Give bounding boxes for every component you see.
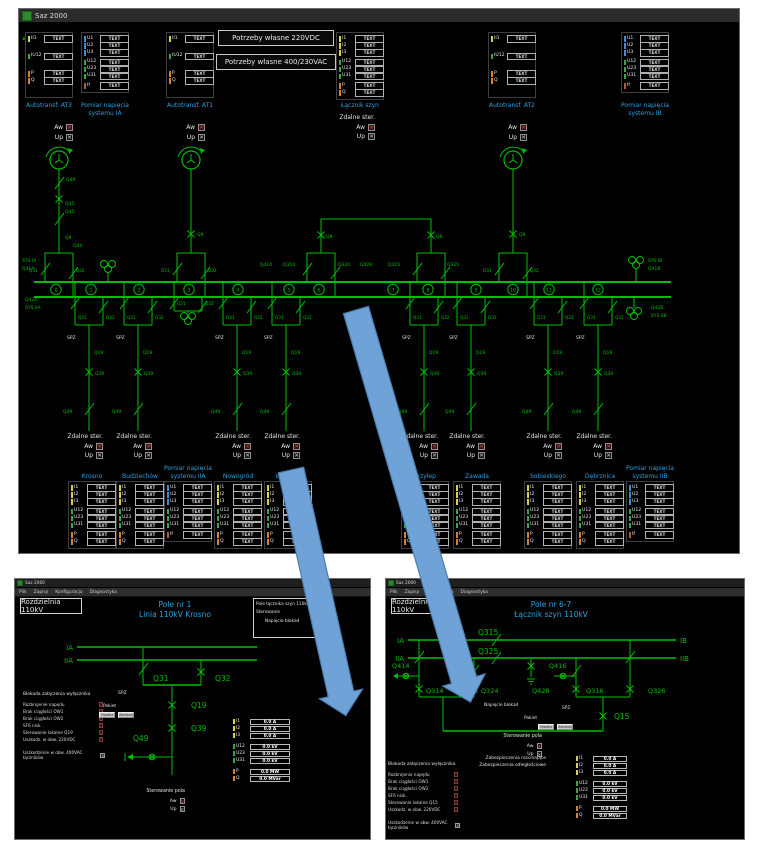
sub-left-measurements: I10.0 AI20.0 AI30.0 AU120.0 kVU230.0 kVU… <box>233 718 290 782</box>
color-bar-icon <box>404 516 406 522</box>
color-bar-icon <box>233 758 235 764</box>
panel-group: PTEXTQTEXT <box>579 532 621 546</box>
svg-text:Napięcie blokad: Napięcie blokad <box>484 702 519 708</box>
telemetry-row: QTEXT <box>267 539 309 546</box>
menu-item-zapisy[interactable]: Zapisy <box>34 590 49 595</box>
telemetry-value: TEXT <box>100 49 129 57</box>
panel-group: I1TEXTI2TEXTI3TEXT <box>217 485 259 506</box>
color-bar-icon <box>404 509 406 515</box>
coupler-remote-remote-row: Zdalne ster. <box>319 113 375 123</box>
telemetry-label: I1 <box>122 485 135 491</box>
color-bar-icon <box>28 54 30 60</box>
svg-text:Q315: Q315 <box>478 628 498 637</box>
instrument-panel-bottom-8: I1TEXTI2TEXTI3TEXTU12TEXTU23TEXTU31TEXTP… <box>576 481 624 549</box>
telemetry-label: U23 <box>627 66 640 72</box>
panel-group: I1TEXTI2TEXTI3TEXT <box>339 36 381 57</box>
telemetry-label: U12 <box>530 508 543 514</box>
aw-label: Aw <box>466 443 475 450</box>
up-checkbox[interactable]: ✕ <box>478 452 485 459</box>
telemetry-value: TEXT <box>420 498 449 506</box>
feeder-remote-7-remote-row: Zdalne ster. <box>552 432 612 442</box>
telemetry-row: U31TEXT <box>456 522 498 529</box>
panel-caption-top-3[interactable]: Łącznik szyn <box>325 102 395 110</box>
telemetry-label: P <box>582 532 595 538</box>
measurement-row: P0.0 MW <box>233 768 290 775</box>
telemetry-row: II1TEXT <box>169 36 211 43</box>
panel-group: U12TEXTU23TEXTU31TEXT <box>339 59 381 80</box>
panel-caption-top-5[interactable]: Pomiar napięcia systemu IB <box>610 102 680 117</box>
color-bar-icon <box>233 769 235 775</box>
sub-right-menubar: PlikZapisyKonfiguracjaDiagnostyka <box>386 588 744 597</box>
telemetry-row: U31TEXT <box>339 73 381 80</box>
color-bar-icon <box>169 71 171 77</box>
measurement-label: I1 <box>579 756 593 761</box>
measurement-label: I3 <box>236 733 250 738</box>
color-bar-icon <box>119 509 121 515</box>
svg-text:Q324: Q324 <box>338 262 350 268</box>
aw-label: Aw <box>186 124 195 131</box>
station-label: Rozdzielnia 110kV <box>20 598 82 614</box>
measurement-label: Q <box>236 776 250 781</box>
svg-text:Q39: Q39 <box>292 371 301 377</box>
blockade-status-box <box>99 730 104 735</box>
color-bar-icon <box>267 532 269 538</box>
aw-label: Aw <box>54 124 63 131</box>
panel-group: IfTEXT <box>629 532 671 539</box>
color-bar-icon <box>576 806 578 812</box>
svg-text:9: 9 <box>475 288 478 294</box>
aw-checkbox[interactable]: ✕ <box>145 443 152 450</box>
instrument-panel-bottom-7: I1TEXTI2TEXTI3TEXTU12TEXTU23TEXTU31TEXTP… <box>524 481 572 549</box>
svg-text:Q32: Q32 <box>488 315 497 320</box>
telemetry-value: TEXT <box>183 531 212 539</box>
measurement-value: 0.0 MW <box>250 769 290 775</box>
telemetry-label: IU12 <box>172 53 185 59</box>
blockade-item-label: Rozbrojenie napędu <box>388 772 430 777</box>
panel-group: PTEXTQTEXT <box>28 71 70 85</box>
telemetry-value: TEXT <box>595 522 624 530</box>
svg-text:Q32: Q32 <box>565 315 574 320</box>
telemetry-value: TEXT <box>233 538 262 546</box>
telemetry-label: U31 <box>632 522 645 528</box>
telemetry-label: U31 <box>342 73 355 79</box>
telemetry-label: I2 <box>270 492 283 498</box>
telemetry-label: If <box>170 532 183 538</box>
color-bar-icon <box>527 499 529 505</box>
instrument-panel-top-2: II1TEXTIU12TEXTPTEXTQTEXT <box>166 32 214 98</box>
telemetry-value: TEXT <box>87 522 116 530</box>
svg-text:12: 12 <box>595 288 601 294</box>
telemetry-value: TEXT <box>183 522 212 530</box>
svg-text:SPZ: SPZ <box>449 335 458 341</box>
color-bar-icon <box>339 43 341 49</box>
telemetry-row: U3TEXT <box>624 50 666 57</box>
telemetry-label: I3 <box>459 499 472 505</box>
telemetry-row: IfTEXT <box>629 532 671 539</box>
color-bar-icon <box>629 492 631 498</box>
telemetry-value: TEXT <box>183 498 212 506</box>
telemetry-label: II1 <box>31 36 44 42</box>
color-bar-icon <box>527 485 529 491</box>
telemetry-label: U31 <box>530 522 543 528</box>
telemetry-label: U12 <box>74 508 87 514</box>
menu-item-diagnostyka[interactable]: Diagnostyka <box>90 590 117 595</box>
instrument-panel-top-4: II1TEXTIU12TEXTPTEXTQTEXT <box>488 32 536 98</box>
svg-text:Q326: Q326 <box>648 687 666 695</box>
aw-checkbox[interactable]: ✕ <box>368 124 375 131</box>
feeder-remote-5: Zdalne ster.Aw✕Up✕ <box>425 432 485 461</box>
telemetry-row: IU12TEXT <box>28 53 70 60</box>
telemetry-row: I3TEXT <box>404 499 446 506</box>
color-bar-icon <box>624 43 626 49</box>
color-bar-icon <box>84 74 86 80</box>
main-titlebar[interactable]: Saz 2000 <box>19 9 739 23</box>
potrzeby-wlasne-400-230vac-button[interactable]: Potrzeby własne 400/230VAC <box>216 54 336 70</box>
telemetry-label: U3 <box>627 50 640 56</box>
feeder-remote-5-remote-row: Zdalne ster. <box>425 432 485 442</box>
svg-text:10: 10 <box>510 288 516 294</box>
color-bar-icon <box>71 485 73 491</box>
telemetry-value: TEXT <box>135 522 164 530</box>
telemetry-value: TEXT <box>185 77 214 85</box>
pakiet-button[interactable]: Otwórz <box>99 712 115 718</box>
busbars <box>34 282 671 297</box>
aw-label: Aw <box>170 799 177 804</box>
aw-checkbox[interactable]: ✕ <box>198 124 205 131</box>
panel-group: PTEXTQTEXT <box>456 532 498 546</box>
telemetry-label: U12 <box>220 508 233 514</box>
telemetry-value: TEXT <box>420 522 449 530</box>
telemetry-row: U31TEXT <box>119 522 161 529</box>
telemetry-label: Q <box>407 539 420 545</box>
up-label: Up <box>544 452 552 459</box>
telemetry-label: I1 <box>220 485 233 491</box>
telemetry-label: I3 <box>530 499 543 505</box>
up-checkbox[interactable]: ✕ <box>198 134 205 141</box>
panel-caption-top-2[interactable]: Autotransf. AT1 <box>155 102 225 110</box>
up-checkbox[interactable]: ✕ <box>520 134 527 141</box>
color-bar-icon <box>629 499 631 505</box>
svg-text:Q314: Q314 <box>426 687 444 695</box>
panel-group: PTEXTQTEXT <box>491 71 533 85</box>
panel-group: U12TEXTU23TEXTU31TEXT <box>217 508 259 529</box>
telemetry-row: QTEXT <box>579 539 621 546</box>
telemetry-label: U1 <box>170 485 183 491</box>
telemetry-row: U31TEXT <box>84 73 126 80</box>
telemetry-label: I2 <box>582 492 595 498</box>
telemetry-value: TEXT <box>283 538 312 546</box>
telemetry-row: IU12TEXT <box>169 53 211 60</box>
panel-caption-bottom-4[interactable]: Łużycka <box>253 464 323 480</box>
telemetry-value: TEXT <box>645 522 674 530</box>
telemetry-label: Q <box>220 539 233 545</box>
telemetry-label: II1 <box>172 36 185 42</box>
potrzeby-wlasne-220vdc-button[interactable]: Potrzeby własne 220VDC <box>218 30 334 46</box>
color-bar-icon <box>576 813 578 819</box>
sub-right-measurements: I10.0 AI20.0 AI30.0 AU120.0 kVU230.0 kVU… <box>576 755 627 819</box>
telemetry-label: U23 <box>122 515 135 521</box>
telemetry-value: TEXT <box>44 77 73 85</box>
telemetry-row: IU12TEXT <box>491 53 533 60</box>
svg-text:Q45: Q45 <box>65 209 74 215</box>
blockade-item: Uszkodz. w obw. 220VDC <box>388 806 458 813</box>
color-bar-icon <box>233 776 235 782</box>
blockade-item-label: Uszkodz. w obw. 220VDC <box>388 807 441 812</box>
up-checkbox[interactable]: ✕ <box>605 452 612 459</box>
at2-remote-aw-row: Aw✕ <box>491 123 527 133</box>
blockade-item: Brak ciągłości OW1 <box>388 778 458 785</box>
aw-checkbox[interactable]: ✕ <box>537 743 543 749</box>
svg-text:Q32: Q32 <box>155 315 164 320</box>
svg-text:Q31: Q31 <box>460 315 469 320</box>
aw-checkbox[interactable]: ✕ <box>293 443 300 450</box>
color-bar-icon <box>629 516 631 522</box>
up-checkbox[interactable]: ✕ <box>368 133 375 140</box>
telemetry-label: U23 <box>74 515 87 521</box>
blockade-item: Sterowanie lokalne Q19 <box>23 729 103 736</box>
at2-remote: Aw✕Up✕ <box>491 123 527 142</box>
svg-text:Q314: Q314 <box>283 262 295 268</box>
feeder-remote-1-remote-row: Zdalne ster. <box>92 432 152 442</box>
telemetry-value: TEXT <box>645 498 674 506</box>
instrument-panel-bottom-6: I1TEXTI2TEXTI3TEXTU12TEXTU23TEXTU31TEXTP… <box>453 481 501 549</box>
field-title-line1: Pole nr 1 <box>110 600 240 610</box>
up-checkbox[interactable]: ✕ <box>145 452 152 459</box>
panel-group: PTEXTQTEXT <box>217 532 259 546</box>
panel-group: U12TEXTU23TEXTU31TEXT <box>119 508 161 529</box>
measurement-value: 0.0 kV <box>593 795 627 801</box>
field-window-linia-krosno: Saz 2000PlikZapisyKonfiguracjaDiagnostyk… <box>14 578 371 840</box>
sub-left-titlebar[interactable]: Saz 2000 <box>15 579 370 588</box>
telemetry-label: Q <box>342 90 355 96</box>
coupler-remote-up-row: Up✕ <box>319 132 375 142</box>
color-bar-icon <box>579 532 581 538</box>
blockade-item-label: Uszkodz. w obw. 220VDC <box>23 737 76 742</box>
telemetry-row: I3TEXT <box>527 499 569 506</box>
svg-text:IIA: IIA <box>64 657 73 665</box>
telemetry-label: Q <box>582 539 595 545</box>
color-bar-icon <box>339 60 341 66</box>
color-bar-icon <box>576 756 578 762</box>
protection-line-1: Zabezpieczenia rozcinające <box>442 755 546 762</box>
panel-group: IU12TEXT <box>169 53 211 60</box>
blockade-item: Brak ciągłości OW2 <box>23 715 103 722</box>
blockade-item: Brak ciągłości OW2 <box>388 785 458 792</box>
svg-text:11: 11 <box>546 288 552 294</box>
panel-group: U12TEXTU23TEXTU31TEXT <box>71 508 113 529</box>
sub-left-blockade-list: Rozbrojenie napęduBrak ciągłości OW1Brak… <box>23 701 103 743</box>
telemetry-label: I3 <box>342 50 355 56</box>
color-bar-icon <box>576 763 578 769</box>
pakiet-button[interactable]: Zamknij <box>118 712 134 718</box>
telemetry-value: TEXT <box>233 498 262 506</box>
telemetry-label: I3 <box>220 499 233 505</box>
svg-text:Q39: Q39 <box>554 371 563 377</box>
aw-checkbox[interactable]: ✕ <box>66 124 73 131</box>
panel-group: U1TEXTU2TEXTU3TEXT <box>167 485 209 506</box>
color-bar-icon <box>119 499 121 505</box>
svg-text:Q31: Q31 <box>127 315 136 320</box>
menu-item-konfiguracja[interactable]: Konfiguracja <box>426 590 453 595</box>
color-bar-icon <box>167 509 169 515</box>
telemetry-label: U31 <box>407 522 420 528</box>
pakiet-button[interactable]: Otwórz <box>538 724 554 730</box>
telemetry-value: TEXT <box>507 35 536 43</box>
control-header: Sterowanie pola <box>484 734 542 742</box>
damage-checkbox[interactable]: ✕ <box>100 753 105 758</box>
telemetry-value: TEXT <box>100 73 129 81</box>
panel-caption-bottom-9[interactable]: Pomiar napięcia systemu IIB <box>615 464 685 480</box>
telemetry-label: U12 <box>627 59 640 65</box>
svg-text:Q428: Q428 <box>360 262 372 268</box>
menu-item-konfiguracja[interactable]: Konfiguracja <box>55 590 82 595</box>
menu-item-diagnostyka[interactable]: Diagnostyka <box>461 590 488 595</box>
telemetry-value: TEXT <box>640 82 669 90</box>
aw-checkbox[interactable]: ✕ <box>180 798 186 804</box>
svg-text:Q39: Q39 <box>430 371 439 377</box>
feeder-remote-1-aw-row: Aw✕ <box>92 442 152 452</box>
telemetry-label: I3 <box>122 499 135 505</box>
color-bar-icon <box>217 499 219 505</box>
color-bar-icon <box>456 485 458 491</box>
measurement-row: U230.0 kV <box>576 787 627 794</box>
scada-main-diagram: ✓0123456789101112Q31Q32Q31Q32Q31Q32Q31Q3… <box>19 23 739 554</box>
telemetry-value: TEXT <box>283 522 312 530</box>
color-bar-icon <box>28 78 30 84</box>
aw-checkbox[interactable]: ✕ <box>478 443 485 450</box>
color-bar-icon <box>119 539 121 545</box>
telemetry-value: TEXT <box>472 498 501 506</box>
svg-text:Q39: Q39 <box>477 371 486 377</box>
at1-remote-up-row: Up✕ <box>169 133 205 143</box>
blockade-item-label: Sterowanie lokalne Q15 <box>388 800 438 805</box>
color-bar-icon <box>491 78 493 84</box>
blockade-item-label: Rozbrojenie napędu <box>23 702 65 707</box>
up-checkbox[interactable]: ✕ <box>180 806 186 812</box>
color-bar-icon <box>267 509 269 515</box>
telemetry-label: P <box>342 83 355 89</box>
feeder-bays: Q31Q32SPZQ19Q39Q49Q31Q32SPZQ19Q39Q49Q31Q… <box>63 282 624 431</box>
telemetry-value: TEXT <box>185 35 214 43</box>
panel-caption-top-1[interactable]: Pomiar napięcia systemu IA <box>70 102 140 117</box>
damage-note: Uszkodzenie w obw. 400VAC łączników <box>23 750 95 760</box>
color-bar-icon <box>339 67 341 73</box>
svg-text:Q19: Q19 <box>603 350 612 356</box>
telemetry-value: TEXT <box>595 538 624 546</box>
telemetry-value: TEXT <box>100 82 129 90</box>
color-bar-icon <box>233 719 235 725</box>
telemetry-label: I3 <box>582 499 595 505</box>
telemetry-value: TEXT <box>507 77 536 85</box>
telemetry-label: U23 <box>582 515 595 521</box>
color-bar-icon <box>579 523 581 529</box>
sub-right-titlebar[interactable]: Saz 2000 <box>386 579 744 588</box>
menu-item-zapisy[interactable]: Zapisy <box>405 590 420 595</box>
svg-text:Q416: Q416 <box>549 662 567 670</box>
damage-checkbox[interactable]: ✕ <box>455 823 460 828</box>
color-bar-icon <box>404 539 406 545</box>
telemetry-label: I3 <box>74 499 87 505</box>
panel-caption-top-4[interactable]: Autotransf. AT2 <box>477 102 547 110</box>
svg-text:Q32: Q32 <box>76 268 85 273</box>
telemetry-label: P <box>122 532 135 538</box>
aw-label: Aw <box>527 744 534 749</box>
instrument-panel-bottom-5: I1TEXTI2TEXTI3TEXTU12TEXTU23TEXTU31TEXTP… <box>401 481 449 549</box>
damage-note: Uszkodzenie w obw. 400VAC łączników <box>388 820 455 830</box>
svg-text:Q49: Q49 <box>211 409 220 415</box>
svg-text:Q32: Q32 <box>530 268 539 273</box>
blockade-status-box <box>99 737 104 742</box>
feeder-remote-7-aw-row: Aw✕ <box>552 442 612 452</box>
measurement-label: P <box>579 806 593 811</box>
svg-text:Q9: Q9 <box>519 232 526 238</box>
color-bar-icon <box>624 67 626 73</box>
svg-text:6: 6 <box>318 288 321 294</box>
color-bar-icon <box>217 532 219 538</box>
protection-line-2: Zabezpieczenia odległościowe <box>442 762 546 769</box>
blockade-item-label: Brak ciągłości OW2 <box>23 716 63 721</box>
telemetry-row: QTEXT <box>339 90 381 97</box>
svg-text:Q31: Q31 <box>587 315 596 320</box>
telemetry-row: U31TEXT <box>624 73 666 80</box>
svg-text:Q8: Q8 <box>326 234 333 240</box>
menu-item-plik[interactable]: Plik <box>390 590 398 595</box>
color-bar-icon <box>167 532 169 538</box>
panel-caption-bottom-6[interactable]: Zawada <box>442 464 512 480</box>
telemetry-label: U31 <box>87 73 100 79</box>
telemetry-label: U23 <box>407 515 420 521</box>
telemetry-value: TEXT <box>87 498 116 506</box>
panel-group: PTEXTQTEXT <box>169 71 211 85</box>
svg-text:Q35: Q35 <box>65 201 74 207</box>
blockade-status-box <box>454 800 459 805</box>
blockade-status-box <box>454 772 459 777</box>
color-bar-icon <box>267 516 269 522</box>
svg-text:IB: IB <box>680 637 687 645</box>
panel-group: IU12TEXT <box>28 53 70 60</box>
pakiet-button[interactable]: Zamknij <box>557 724 573 730</box>
field-title-line2: Linia 110kV Krosno <box>110 610 240 620</box>
aw-checkbox[interactable]: ✕ <box>605 443 612 450</box>
blockade-item-label: SF6 nisk. <box>388 793 407 798</box>
telemetry-label: U23 <box>632 515 645 521</box>
telemetry-label: U23 <box>87 66 100 72</box>
svg-text:Q324: Q324 <box>481 687 499 695</box>
color-bar-icon <box>119 523 121 529</box>
telemetry-label: U31 <box>220 522 233 528</box>
telemetry-label: If <box>87 83 100 89</box>
aw-checkbox[interactable]: ✕ <box>520 124 527 131</box>
sub-left-title: Saz 2000 <box>25 581 45 586</box>
measurement-label: U23 <box>236 751 250 756</box>
at2-remote-up-row: Up✕ <box>491 133 527 143</box>
up-label: Up <box>134 452 142 459</box>
telemetry-row: II1TEXT <box>491 36 533 43</box>
color-bar-icon <box>84 36 86 42</box>
up-checkbox[interactable]: ✕ <box>293 452 300 459</box>
svg-text:Q49: Q49 <box>572 409 581 415</box>
menu-item-plik[interactable]: Plik <box>19 590 27 595</box>
svg-text:7: 7 <box>392 288 395 294</box>
measurement-value: 0.0 A <box>250 733 290 739</box>
blockade-item-label: Sterowanie lokalne Q19 <box>23 730 73 735</box>
svg-text:Q49: Q49 <box>445 409 454 415</box>
aw-label: Aw <box>281 443 290 450</box>
up-checkbox[interactable]: ✕ <box>66 134 73 141</box>
telemetry-row: QTEXT <box>28 78 70 85</box>
telemetry-label: U12 <box>122 508 135 514</box>
telemetry-label: Q <box>494 78 507 84</box>
